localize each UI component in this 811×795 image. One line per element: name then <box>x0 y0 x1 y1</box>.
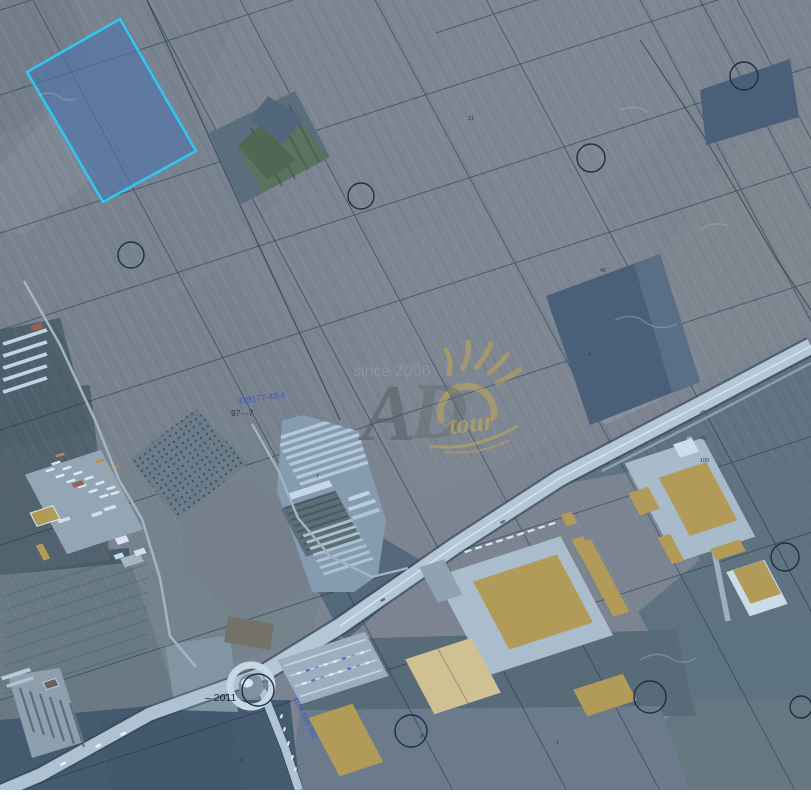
svg-text:9: 9 <box>240 758 243 764</box>
svg-text:– 2011: – 2011 <box>205 692 236 704</box>
svg-text:1: 1 <box>556 740 559 746</box>
svg-text:7: 7 <box>316 474 319 480</box>
svg-text:40: 40 <box>600 268 606 274</box>
svg-text:100: 100 <box>700 458 709 464</box>
svg-text:31: 31 <box>468 116 474 122</box>
svg-text:97- -7: 97- -7 <box>231 408 253 418</box>
svg-text:tour: tour <box>448 406 496 440</box>
svg-text:40: 40 <box>700 436 706 442</box>
svg-text:A: A <box>357 370 415 458</box>
svg-text:8: 8 <box>420 734 423 740</box>
svg-text:4: 4 <box>588 352 591 358</box>
